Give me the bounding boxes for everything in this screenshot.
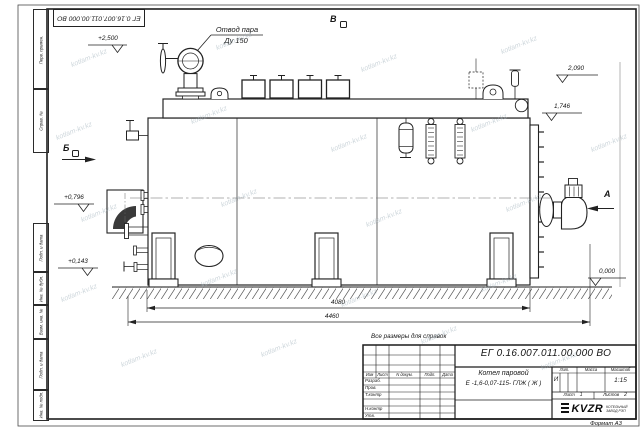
manhole [195,246,223,267]
drawing-linework [0,0,644,430]
dim-shell-length: 4080 [316,300,360,307]
elevation-steam-outlet: +2,500 [86,36,130,43]
row-label-tkontr: Т.контр [365,393,382,398]
view-symbol-v-icon [340,21,347,28]
callout-steam-line2: Ду 150 [213,37,259,45]
sheet-label: Лист [563,393,574,398]
logo-brand: KVZR [572,403,604,415]
burner-assembly [540,179,587,230]
logo-bars-icon [561,403,569,415]
mass-header: Масса [577,368,605,372]
elevation-ground: 0,000 [585,269,629,276]
stamp-podp-data-2: Подп. и дата [33,338,49,391]
stamp-sprav-no: Справ. № [33,88,49,153]
product-name-line2: Е -1,6-0,07-115- ГЛЖ ( Ж ) [455,381,552,388]
sheets-value: 2 [624,393,627,398]
lit-header: Лит. [552,368,577,372]
sheets-label: Листов [603,393,619,398]
company-logo: KVZR КОТЕЛЬНЫЙ ЗАВОД РЭП [553,400,635,418]
stamp-label: Подп. и дата [39,351,44,378]
top-doc-number-box: ЕГ 0.16.007.011.00.000 ВО [53,9,145,27]
stamp-vzam-inv: Взам. инв. № [33,304,49,340]
row-label-prov: Пров. [365,386,377,391]
title-doc-number: ЕГ 0.16.007.011.00.000 ВО [457,349,635,360]
callout-steam-line1: Отвод пара [209,26,265,34]
format-note: Формат А3 [572,421,640,427]
stamp-label: Инв. № дубл. [39,275,44,301]
scale-header: Масштаб [605,368,636,372]
col-header-podp: Подп. [420,373,440,377]
elevation-left-mid: +0,796 [52,195,96,202]
row-label-nkontr: Н.контр [365,407,382,412]
reference-note: Все размеры для справок [371,334,446,341]
stamp-inv-podl: Инв. № подл. [33,389,49,421]
stamp-label: Взам. инв. № [39,309,44,336]
water-level-gauge-2 [455,119,465,165]
stamp-label: Подп. и дата [39,235,44,262]
front-smokebox-and-fittings [107,121,148,272]
dim-overall-length: 4460 [310,314,354,321]
product-name-line1: Котел паровой [455,370,552,377]
logo-sub-line2: ЗАВОД РЭП [606,409,627,413]
lit-value: И [552,377,560,383]
row-label-razrab: Разраб. [365,379,381,384]
scale-value: 1:15 [605,378,636,385]
view-label-b: Б [63,144,69,153]
stamp-perv-primen: Перв. примен. [33,9,49,90]
water-level-gauge-1 [426,119,436,165]
view-label-a: А [604,190,611,199]
drawing-sheet: ЕГ 0.16.007.011.00.000 ВО Перв. примен. … [0,0,644,430]
elevation-top-right: 2,090 [554,66,598,73]
row-label-utv: Утв. [365,414,375,419]
logo-subtext: КОТЕЛЬНЫЙ ЗАВОД РЭП [606,405,627,414]
view-symbol-b-icon [72,150,79,157]
stamp-inv-dubl: Инв. № дубл. [33,271,49,306]
steam-outlet-valve [158,44,205,100]
sheet-cell: Лист 1 [552,392,594,399]
sheet-value: 1 [580,393,583,398]
stamp-label: Перв. примен. [39,35,44,64]
ground-line [112,287,612,299]
stamp-label: Справ. № [39,111,44,131]
view-label-v: В [330,15,337,24]
stamp-label: Инв. № подл. [39,392,44,419]
stamp-podp-data-1: Подп. и дата [33,223,49,273]
col-header-data: Дата [440,373,455,377]
rear-flange-and-burner [530,125,587,278]
elevation-left-low: +0,143 [56,259,100,266]
col-header-docum: N докум. [389,373,420,377]
safety-valve-group [242,76,350,99]
elevation-drum-top: 1,746 [540,104,584,111]
steam-drum-band [163,99,528,118]
col-header-list: Лист [376,373,389,377]
col-header-izm: Изм [363,373,376,377]
top-doc-number: ЕГ 0.16.007.011.00.000 ВО [57,15,141,22]
sheets-cell: Листов 2 [594,392,636,399]
